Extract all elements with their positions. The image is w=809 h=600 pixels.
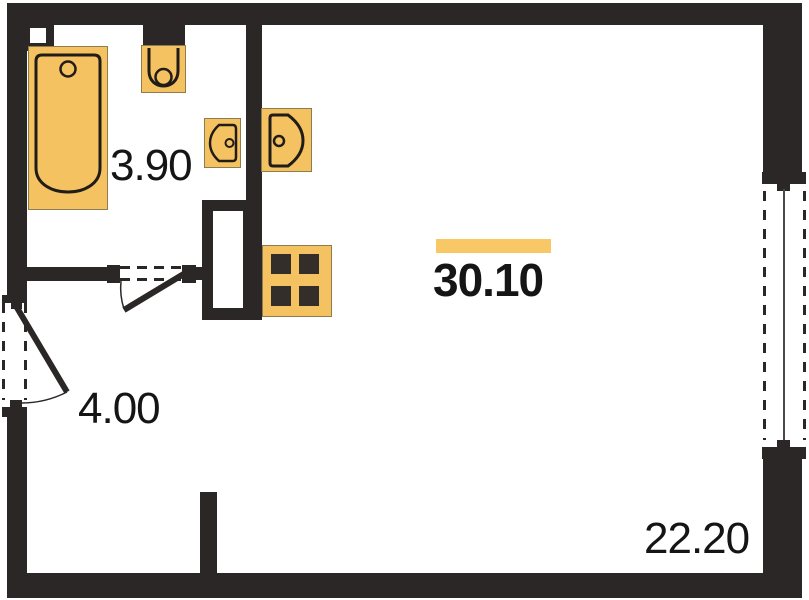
- wall-bathroom-divider: [246, 25, 262, 320]
- toilet: [141, 45, 186, 93]
- stove-burner-top-left: [271, 254, 291, 274]
- stove: [262, 245, 332, 317]
- area-label-main-far: 22.20: [644, 517, 749, 561]
- kitchen-sink: [261, 108, 312, 172]
- window-cap-top: [762, 172, 806, 184]
- floor-plan: 3.90 4.00 30.10 22.20: [0, 0, 809, 600]
- bathroom-door-jamb-left: [107, 265, 120, 283]
- wall-top: [7, 3, 802, 25]
- window-dash-inner: [763, 191, 766, 440]
- toilet-tank: [143, 25, 185, 46]
- entry-opening-dash-inner: [24, 303, 27, 400]
- wall-stub-bottom: [200, 492, 217, 573]
- entry-door-swing-arc: [21, 392, 67, 403]
- bathroom-door-swing-arc: [121, 281, 124, 309]
- corner-column-cavity: [30, 28, 46, 43]
- area-label-bathroom: 3.90: [110, 144, 192, 188]
- bathroom-door-dash-top: [120, 266, 182, 269]
- entry-opening-dash-outer: [2, 303, 5, 400]
- stove-burner-bottom-right: [299, 286, 319, 306]
- entry-opening-cap-top: [2, 295, 27, 303]
- stove-burner-bottom-left: [271, 286, 291, 306]
- wall-right-upper: [763, 3, 802, 172]
- fixture-outline-layer: [0, 0, 809, 600]
- entry-door-hinge: [11, 303, 22, 309]
- wall-right-lower: [763, 459, 802, 598]
- area-label-main: 30.10: [433, 257, 543, 303]
- bathroom-door-dash-bottom: [120, 278, 182, 281]
- bathroom-sink: [204, 118, 241, 168]
- entry-door-closed-tab: [10, 400, 22, 407]
- main-area-accent-bar: [436, 239, 551, 253]
- wall-left-upper: [7, 3, 27, 295]
- wall-left-lower: [7, 417, 27, 598]
- duct-shaft-cavity: [213, 211, 243, 308]
- duct-shaft: [202, 200, 247, 320]
- window-dash-outer: [803, 191, 806, 440]
- wall-bathroom-bottom: [25, 267, 110, 281]
- bathroom-door-jamb-right: [182, 265, 196, 283]
- window-glass-line: [783, 189, 785, 441]
- window-cap-bottom: [762, 447, 806, 459]
- bathtub: [28, 46, 108, 210]
- entry-opening-cap-bottom: [2, 407, 27, 417]
- stove-burner-top-right: [299, 254, 319, 274]
- window-tab-bottom: [777, 440, 790, 447]
- wall-bottom: [7, 573, 802, 598]
- area-label-hallway: 4.00: [78, 387, 160, 431]
